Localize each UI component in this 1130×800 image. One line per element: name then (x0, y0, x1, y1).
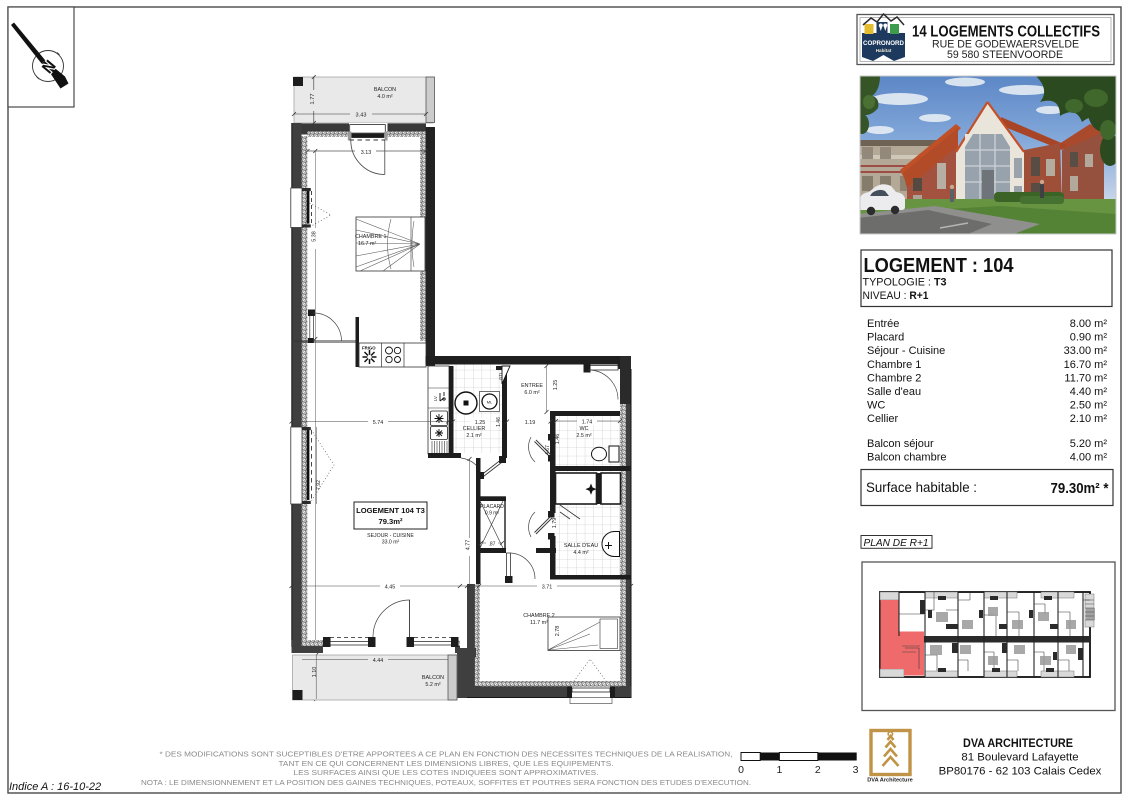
svg-text:ML: ML (487, 400, 493, 405)
svg-text:NOTA : LE DIMENSIONNEMENT ET L: NOTA : LE DIMENSIONNEMENT ET LA POSITION… (141, 778, 751, 787)
svg-text:SEJOUR - CUISINE: SEJOUR - CUISINE (367, 533, 414, 539)
svg-text:WC: WC (867, 400, 885, 412)
svg-text:1.74: 1.74 (582, 420, 593, 426)
svg-text:Chambre 1: Chambre 1 (867, 359, 921, 371)
svg-text:4.40 m²: 4.40 m² (1070, 386, 1108, 398)
svg-text:1.25: 1.25 (553, 380, 559, 391)
svg-text:4.45: 4.45 (385, 585, 396, 591)
svg-text:LOGEMENT 104 T3: LOGEMENT 104 T3 (356, 506, 425, 515)
svg-text:DVA ARCHITECTURE: DVA ARCHITECTURE (963, 736, 1073, 750)
svg-text:81 Boulevard Lafayette: 81 Boulevard Lafayette (961, 752, 1078, 764)
svg-text:11.7 m²: 11.7 m² (530, 620, 548, 626)
svg-text:1.19: 1.19 (525, 420, 536, 426)
svg-text:CELLIER: CELLIER (463, 426, 486, 432)
svg-text:TYPOLOGIE : T3: TYPOLOGIE : T3 (863, 277, 947, 289)
svg-text:DVA Architecture: DVA Architecture (867, 778, 912, 784)
svg-text:BALCON: BALCON (422, 675, 444, 681)
svg-text:3.13: 3.13 (361, 150, 372, 156)
svg-text:4.67: 4.67 (545, 445, 551, 455)
svg-text:.87: .87 (489, 542, 496, 548)
svg-text:33.0 m²: 33.0 m² (382, 540, 400, 546)
svg-text:0.9 m²: 0.9 m² (485, 511, 500, 517)
svg-text:NIVEAU : R+1: NIVEAU : R+1 (863, 290, 930, 302)
svg-text:WC: WC (580, 426, 589, 432)
svg-text:1.77: 1.77 (310, 94, 316, 105)
svg-text:Indice A : 16-10-22: Indice A : 16-10-22 (9, 781, 101, 793)
svg-text:3: 3 (853, 764, 859, 776)
svg-text:4.77: 4.77 (466, 540, 472, 551)
svg-text:4.00 m²: 4.00 m² (1070, 452, 1108, 464)
svg-text:1.79: 1.79 (552, 518, 558, 529)
svg-text:1.10: 1.10 (312, 667, 318, 678)
svg-text:79.30m² *: 79.30m² * (1051, 481, 1109, 497)
svg-text:6.0 m²: 6.0 m² (524, 390, 539, 396)
svg-text:Cellier: Cellier (867, 413, 899, 425)
svg-text:8.00 m²: 8.00 m² (1070, 318, 1108, 330)
svg-text:33.00 m²: 33.00 m² (1064, 345, 1108, 357)
svg-text:TANT EN CE QUI CONCERNENT LES: TANT EN CE QUI CONCERNENT LES DIMENSIONS… (279, 759, 614, 768)
svg-text:4.4 m²: 4.4 m² (573, 550, 588, 556)
svg-text:BP80176 - 62 103 Calais Cedex: BP80176 - 62 103 Calais Cedex (939, 766, 1102, 778)
svg-text:PLAN DE R+1: PLAN DE R+1 (864, 538, 929, 549)
svg-text:Placard: Placard (867, 332, 904, 344)
svg-text:4.0 m²: 4.0 m² (377, 94, 392, 100)
svg-text:2.1 m²: 2.1 m² (466, 433, 481, 439)
svg-text:GTL: GTL (498, 371, 503, 380)
svg-text:Surface habitable :: Surface habitable : (866, 479, 977, 495)
svg-text:1.46: 1.46 (496, 417, 502, 427)
svg-text:2.50 m²: 2.50 m² (1070, 400, 1108, 412)
svg-text:16.70 m²: 16.70 m² (1064, 359, 1108, 371)
svg-text:Entrée: Entrée (867, 318, 899, 330)
svg-text:FRIGO: FRIGO (362, 346, 376, 351)
svg-text:79.3m²: 79.3m² (378, 517, 403, 526)
svg-text:11.70 m²: 11.70 m² (1064, 372, 1107, 384)
svg-text:1.25: 1.25 (475, 420, 486, 426)
svg-text:59 580 STEENVOORDE: 59 580 STEENVOORDE (947, 49, 1063, 61)
svg-text:3.71: 3.71 (542, 585, 553, 591)
svg-text:0.90 m²: 0.90 m² (1070, 332, 1108, 344)
svg-text:Séjour - Cuisine: Séjour - Cuisine (867, 345, 945, 357)
svg-text:COPRONORD: COPRONORD (863, 40, 904, 47)
svg-text:* DES MODIFICATIONS SONT SUCEP: * DES MODIFICATIONS SONT SUCEPTIBLES D'E… (160, 750, 733, 759)
svg-text:16.7 m²: 16.7 m² (358, 241, 376, 247)
svg-text:Balcon chambre: Balcon chambre (867, 452, 947, 464)
svg-text:2: 2 (815, 764, 821, 776)
svg-text:CHAMBRE 1: CHAMBRE 1 (355, 234, 386, 240)
svg-text:LOGEMENT : 104: LOGEMENT : 104 (864, 255, 1015, 277)
svg-text:LES SURFACES AINSI QUE LES COT: LES SURFACES AINSI QUE LES COTES INDIQUE… (294, 768, 599, 777)
svg-text:1.46: 1.46 (555, 434, 561, 445)
svg-text:2.10 m²: 2.10 m² (1070, 413, 1108, 425)
svg-text:2.5 m²: 2.5 m² (576, 433, 591, 439)
svg-text:SALLE D'EAU: SALLE D'EAU (564, 543, 598, 549)
svg-text:Habitat: Habitat (876, 48, 892, 53)
svg-text:Balcon séjour: Balcon séjour (867, 438, 934, 450)
svg-text:2.78: 2.78 (555, 626, 561, 637)
svg-text:0: 0 (738, 764, 744, 776)
svg-text:Salle d'eau: Salle d'eau (867, 386, 921, 398)
svg-text:5.74: 5.74 (373, 420, 384, 426)
svg-text:BALCON: BALCON (374, 87, 396, 93)
svg-text:3.43: 3.43 (356, 113, 367, 119)
svg-text:5.2 m²: 5.2 m² (425, 682, 440, 688)
svg-text:5.20 m²: 5.20 m² (1070, 438, 1108, 450)
svg-text:4.44: 4.44 (373, 658, 384, 664)
svg-text:LV: LV (433, 396, 438, 401)
svg-text:Chambre 2: Chambre 2 (867, 372, 921, 384)
svg-text:1: 1 (776, 764, 782, 776)
svg-text:5.38: 5.38 (311, 231, 317, 242)
svg-text:PLACARD: PLACARD (480, 504, 504, 510)
svg-text:ENTREE: ENTREE (521, 383, 543, 389)
svg-text:7.92: 7.92 (316, 480, 322, 490)
